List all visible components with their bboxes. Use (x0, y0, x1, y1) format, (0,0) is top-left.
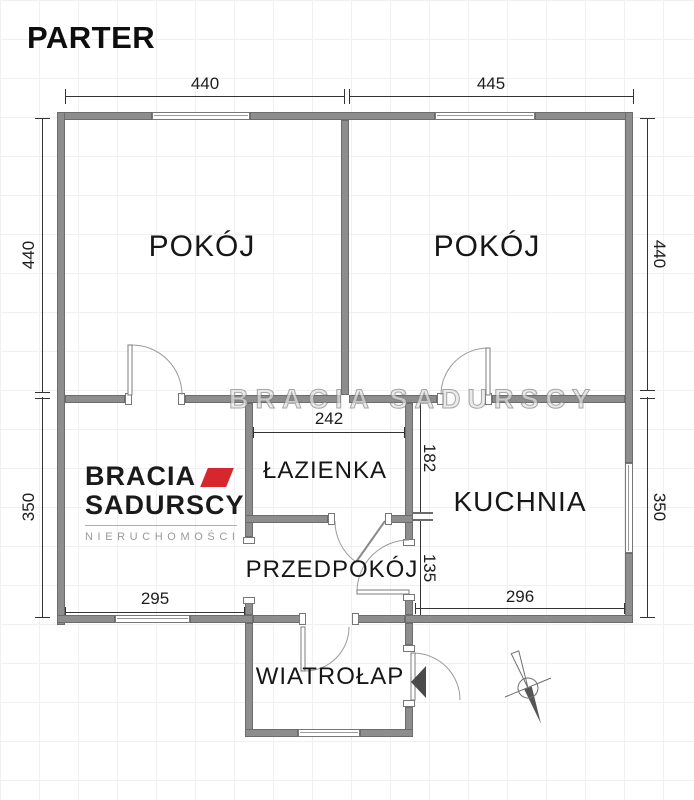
dim-left-upper: 440 (19, 241, 39, 269)
dimension-tick (640, 390, 655, 391)
dim-bottom-left: 295 (141, 589, 169, 609)
watermark: BRACIA SADURSCY (229, 384, 597, 415)
dimension-tick (640, 118, 655, 119)
entrance-arrow-icon (411, 666, 426, 698)
room-label-wiatrolap: WIATROŁAP (256, 663, 405, 691)
door-jamb (403, 645, 415, 652)
dim-hallway-side: 135 (419, 554, 439, 582)
door-entrance (411, 653, 460, 700)
wall-segment (390, 515, 413, 523)
dimension-line (65, 96, 345, 97)
page-title: PARTER (27, 20, 155, 56)
dimension-tick (344, 89, 345, 104)
wall-segment (57, 615, 115, 623)
room-label-kuchnia: KUCHNIA (453, 486, 586, 518)
room-label-lazienka: ŁAZIENKA (263, 457, 387, 485)
wall-segment (245, 623, 253, 737)
wall-segment (405, 615, 633, 623)
dimension-line (647, 397, 648, 617)
dimension-line (42, 118, 43, 393)
door-jamb (125, 393, 132, 405)
dim-right-upper: 440 (649, 240, 669, 268)
wall-segment (535, 112, 633, 120)
dimension-tick (65, 89, 66, 104)
wall-segment (625, 553, 633, 623)
dimension-line (253, 432, 405, 433)
dimension-tick (253, 427, 254, 438)
dim-right-lower: 350 (649, 493, 669, 521)
dimension-tick (633, 89, 634, 104)
logo-flag-icon (200, 468, 234, 487)
dim-top-left: 440 (191, 74, 219, 94)
dimension-line (415, 608, 625, 609)
dim-left-lower: 350 (19, 493, 39, 521)
dimension-tick (35, 392, 50, 393)
room-label-przedpokoj: PRZEDPOKÓJ (246, 556, 419, 584)
wall-segment (253, 615, 300, 623)
door-jamb (243, 597, 255, 604)
dim-bathroom-side: 182 (419, 444, 439, 472)
wall-segment (245, 515, 328, 523)
window (298, 729, 360, 737)
wall-segment (190, 615, 253, 623)
dimension-line (647, 118, 648, 390)
dimension-tick (35, 398, 50, 399)
dimension-line (65, 612, 245, 613)
logo-line1: BRACIA (85, 462, 196, 490)
door-jamb (403, 700, 415, 707)
door-jamb (385, 513, 392, 525)
dim-top-right: 445 (477, 74, 505, 94)
wall-segment (405, 600, 413, 615)
wall-segment (625, 112, 633, 463)
door-jamb (299, 613, 306, 625)
logo-line3: NIERUCHOMOŚCI (85, 531, 245, 543)
door-jamb (178, 393, 185, 405)
wall-segment (405, 623, 413, 645)
dimension-line (42, 397, 43, 617)
wall-segment (358, 615, 405, 623)
door-jamb (352, 613, 359, 625)
north-arrow-icon (505, 649, 551, 727)
floor-plan: PARTER (0, 0, 694, 800)
room-label-pokoj-right: POKÓJ (434, 230, 541, 264)
room-label-pokoj-left: POKÓJ (149, 230, 256, 264)
wall-segment (360, 729, 413, 737)
wall-segment (245, 729, 298, 737)
door-jamb (403, 594, 415, 601)
window (435, 112, 535, 120)
wall-segment (57, 112, 152, 120)
dimension-line (349, 96, 633, 97)
wall-segment (250, 112, 435, 120)
wall-segment (341, 120, 349, 395)
agency-logo: BRACIA SADURSCY NIERUCHOMOŚCI (85, 462, 245, 543)
logo-line2: SADURSCY (85, 490, 245, 521)
dimension-tick (35, 118, 50, 119)
dimension-tick (640, 617, 655, 618)
door-room-left (128, 345, 182, 395)
wall-segment (57, 112, 65, 625)
window (625, 463, 633, 553)
door-jamb (403, 539, 415, 546)
dimension-tick (415, 603, 416, 614)
wall-segment (245, 603, 253, 615)
dimension-tick (640, 398, 655, 399)
wall-segment (65, 395, 125, 403)
window (115, 615, 190, 623)
logo-divider (85, 525, 237, 526)
dimension-tick (35, 617, 50, 618)
dimension-tick (349, 89, 350, 104)
door-jamb (328, 513, 335, 525)
window (152, 112, 250, 120)
dim-kitchen-width: 296 (506, 587, 534, 607)
